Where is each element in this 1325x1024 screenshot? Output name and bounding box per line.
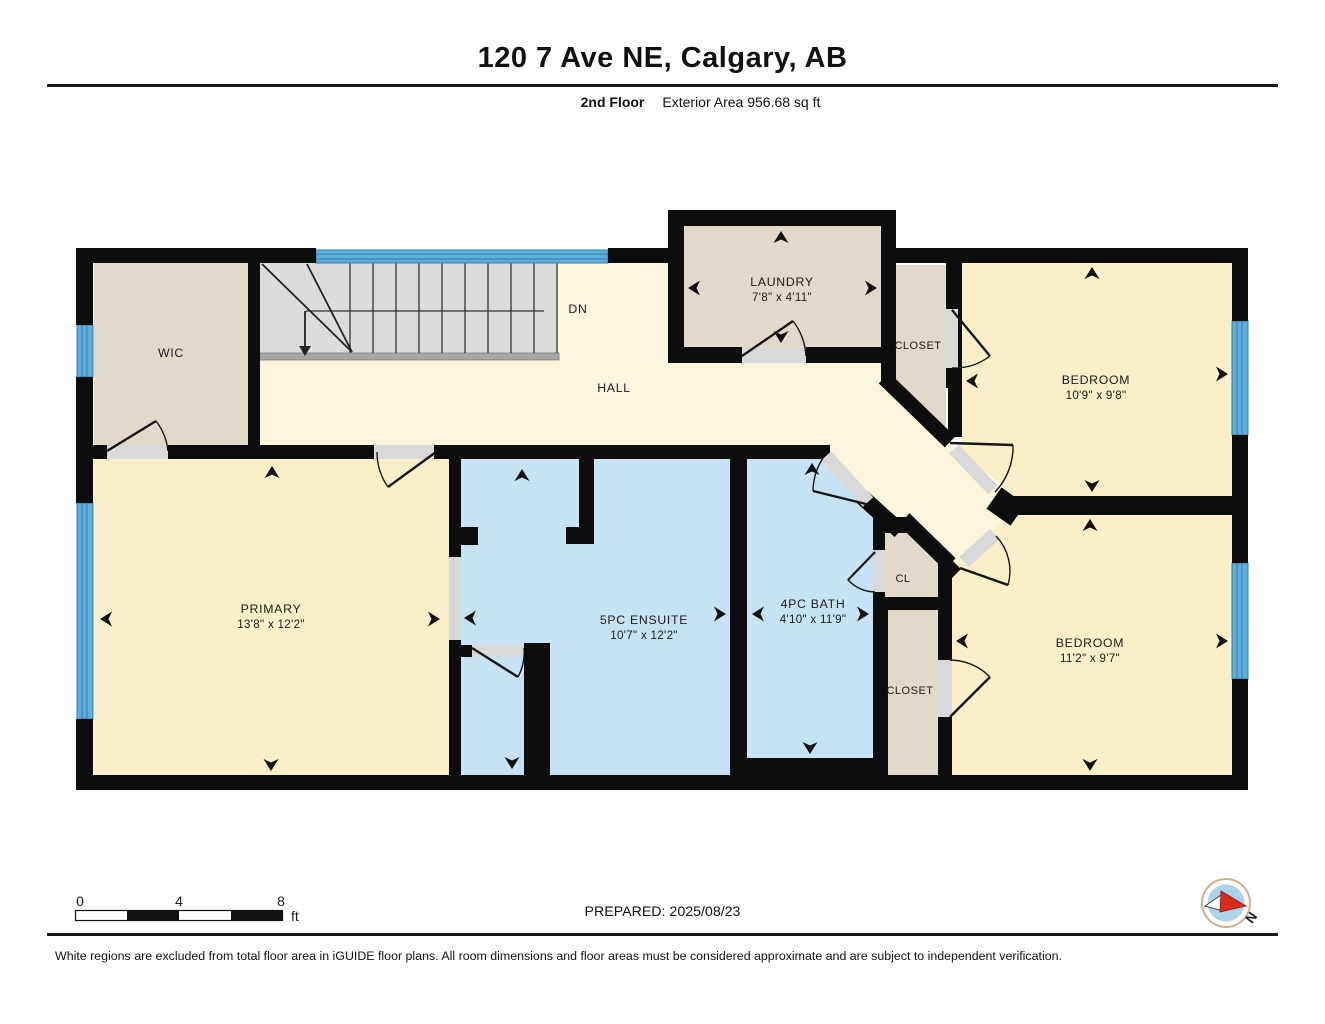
label-laundry-dims: 7'8" x 4'11" — [752, 291, 812, 304]
label-ensuite: 5PC ENSUITE — [600, 613, 688, 627]
label-bedroom-bottom: BEDROOM — [1056, 636, 1124, 650]
label-primary-dims: 13'8" x 12'2" — [237, 618, 304, 631]
window-top — [316, 250, 608, 263]
label-bedroom-top-dims: 10'9" x 9'8" — [1066, 389, 1127, 402]
label-wic: WIC — [158, 346, 184, 360]
label-bath: 4PC BATH — [781, 597, 846, 611]
prepared-date: PREPARED: 2025/08/23 — [0, 904, 1325, 920]
footer-divider — [47, 933, 1278, 936]
label-bedroom-bottom-dims: 11'2" x 9'7" — [1060, 652, 1120, 665]
window-bedroom-bottom — [1232, 563, 1248, 679]
label-closet-bottom: CLOSET — [886, 685, 933, 697]
label-bedroom-top: BEDROOM — [1062, 373, 1130, 387]
disclaimer-text: White regions are excluded from total fl… — [55, 949, 1155, 963]
label-ensuite-dims: 10'7" x 12'2" — [610, 629, 677, 642]
room-ensuite — [461, 459, 730, 775]
label-dn: DN — [568, 302, 587, 316]
window-bedroom-top — [1232, 321, 1248, 435]
floor-plan: WIC DN HALL LAUNDRY 7'8" x 4'11" CLOSET … — [0, 0, 1325, 1024]
label-closet-top: CLOSET — [894, 340, 941, 352]
stairs — [260, 263, 559, 360]
label-hall: HALL — [597, 381, 631, 395]
label-primary: PRIMARY — [241, 602, 302, 616]
window-primary — [77, 503, 93, 719]
label-bath-dims: 4'10" x 11'9" — [780, 613, 847, 626]
label-cl: CL — [895, 573, 910, 585]
label-laundry: LAUNDRY — [750, 275, 813, 289]
room-primary — [94, 459, 449, 775]
window-wic — [77, 325, 93, 377]
